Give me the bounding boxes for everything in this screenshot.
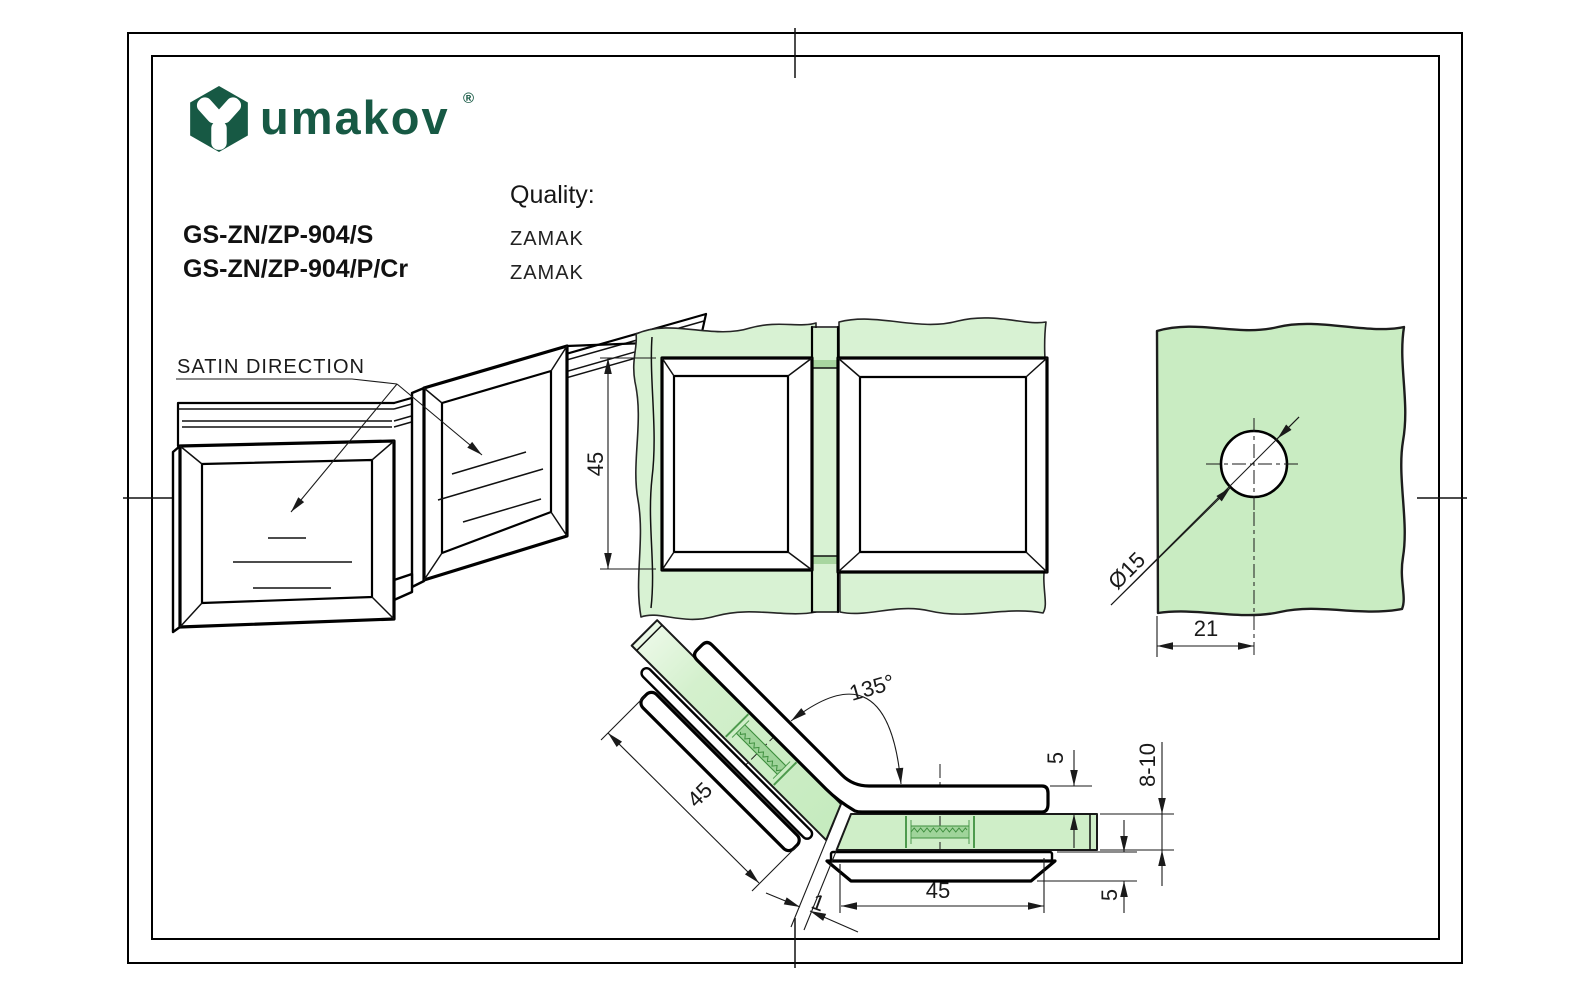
dim-front-height: 45 <box>585 452 607 476</box>
dim-base-length: 45 <box>926 880 950 902</box>
side-view-drawing <box>1111 324 1405 657</box>
product-code-chrome: GS-ZN/ZP-904/P/Cr <box>183 257 408 282</box>
section-view-drawing <box>601 614 1174 932</box>
quality-label: Quality: <box>510 183 595 208</box>
registered-mark: ® <box>463 91 474 106</box>
dim-plate-bottom: 5 <box>1099 889 1121 901</box>
brand-wordmark: umakov <box>260 94 450 141</box>
front-view-drawing <box>600 318 1047 619</box>
dim-glass-thickness: 8-10 <box>1137 743 1159 787</box>
umakov-logo-icon <box>186 85 252 153</box>
product-code-satin: GS-ZN/ZP-904/S <box>183 223 373 248</box>
dim-hole-offset: 21 <box>1194 618 1218 640</box>
satin-direction-label: SATIN DIRECTION <box>177 357 365 377</box>
drawing-sheet: umakov ® Quality: GS-ZN/ZP-904/S GS-ZN/Z… <box>0 0 1590 997</box>
quality-value-chrome: ZAMAK <box>510 263 584 283</box>
quality-value-satin: ZAMAK <box>510 229 584 249</box>
dim-plate-top: 5 <box>1045 752 1067 764</box>
